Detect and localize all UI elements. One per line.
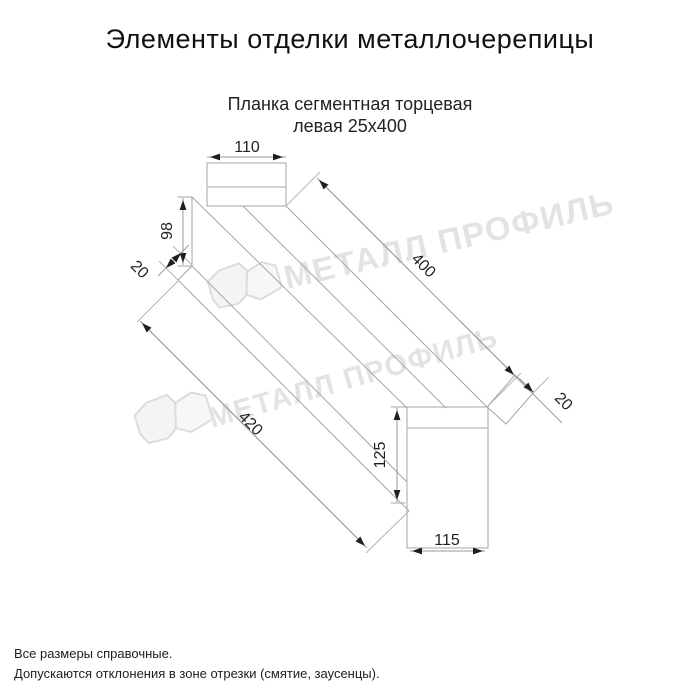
dimension-label-top-width: 110 [234, 139, 260, 156]
dimension-label-end-width: 115 [434, 532, 460, 549]
watermark-lower: МЕТАЛЛ ПРОФИЛЬ [132, 321, 502, 444]
watermark-text: МЕТАЛЛ ПРОФИЛЬ [280, 184, 618, 296]
watermark-upper: МЕТАЛЛ ПРОФИЛЬ [206, 184, 618, 309]
footer-notes: Все размеры справочные. Допускаются откл… [14, 644, 380, 684]
dimension-label-end-height: 125 [372, 442, 389, 469]
top-flap [207, 163, 286, 206]
drawing-page: Элементы отделки металлочерепицы Планка … [0, 0, 700, 700]
strip-hem-end-edge [178, 266, 192, 280]
footer-note-2: Допускаются отклонения в зоне отрезки (с… [14, 664, 380, 684]
dimension-labels: 110 98 20 400 20 420 125 115 [127, 139, 576, 549]
dimension-label-end-fold: 20 [551, 390, 576, 415]
dimension-label-left-fold: 20 [127, 258, 152, 283]
dimension-label-left-height: 98 [159, 222, 176, 240]
strip-hem-outer-edge [178, 280, 409, 511]
brand-logo-icon [206, 259, 283, 308]
footer-note-1: Все размеры справочные. [14, 644, 380, 664]
technical-drawing: МЕТАЛЛ ПРОФИЛЬ МЕТАЛЛ ПРОФИЛЬ [0, 0, 700, 700]
brand-logo-icon [132, 389, 215, 444]
